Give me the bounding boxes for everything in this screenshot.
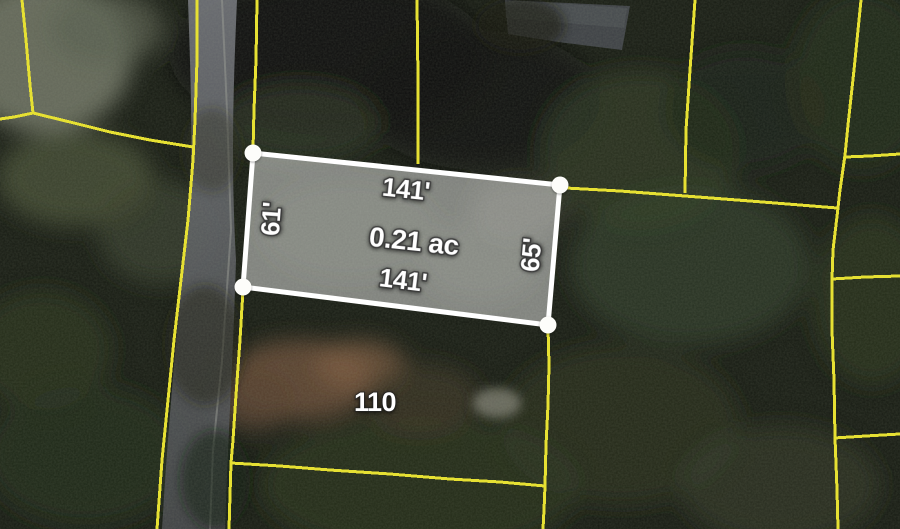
dimension-label-bottom: 141': [378, 262, 429, 298]
map-canvas[interactable]: 141' 61' 0.21 ac 141' 65' 110: [0, 0, 900, 529]
parcel-boundary-line: [417, 0, 418, 164]
dimension-label-right: 65': [515, 237, 548, 273]
parcel-vertex-handle[interactable]: [235, 279, 252, 296]
lot-number-label: 110: [354, 387, 396, 417]
dimension-label-left: 61': [255, 201, 287, 237]
parcel-vertex-handle[interactable]: [552, 177, 569, 194]
parcel-vertex-handle[interactable]: [245, 145, 262, 162]
dimension-label-top: 141': [381, 172, 431, 207]
parcel-vertex-handle[interactable]: [540, 317, 557, 334]
